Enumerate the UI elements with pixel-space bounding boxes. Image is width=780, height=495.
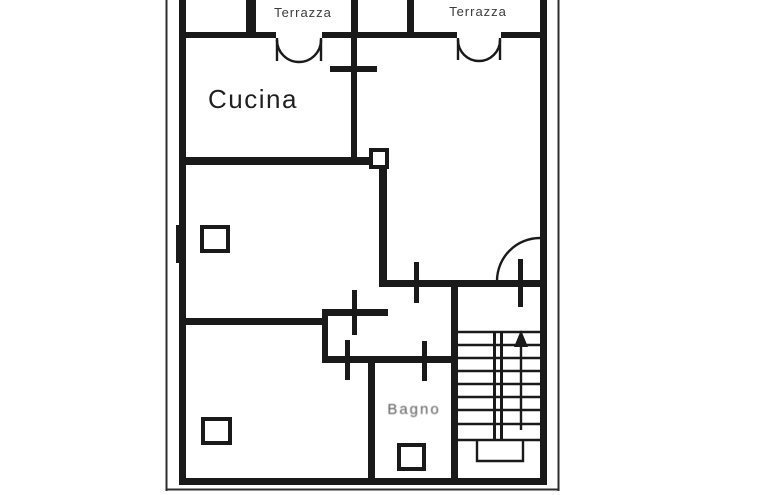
window-marker-left-wall (176, 225, 180, 263)
stairs-up-arrow-icon (514, 330, 528, 430)
wall-terrace-divider-2 (407, 0, 414, 38)
building-walls (179, 0, 547, 485)
wall-terrace-divider-0 (246, 0, 256, 38)
stair-stringer (493, 332, 496, 440)
opening-kitchen-living (330, 66, 377, 72)
fixture-square-bedroom2 (203, 419, 230, 443)
fixture-square-bath (399, 445, 424, 469)
floor-plan-drawing: Terrazza Terrazza Cucina Bagno (0, 0, 780, 495)
fixture-square-bedroom1 (202, 227, 228, 251)
wall-right (540, 0, 547, 485)
room-label-cucina: Cucina (208, 84, 298, 114)
room-fixtures (202, 227, 424, 469)
stair-stringer (500, 332, 503, 440)
terrace-double-doors (277, 38, 500, 62)
staircase (457, 330, 543, 461)
wall-bedroom2-top (181, 318, 328, 325)
pillar-square (371, 150, 387, 167)
wall-bath-left (368, 363, 375, 481)
door-swing-arc (458, 40, 479, 61)
wall-stair-left (451, 287, 458, 481)
wall-terrace-divider-1 (351, 0, 358, 38)
opening-bath-hall (422, 341, 427, 381)
wall-kitchen-right (351, 38, 357, 160)
wall-terrace-sill-c (501, 32, 542, 38)
room-label-bagno: Bagno (387, 401, 440, 418)
wall-terrace-sill-a (184, 32, 276, 38)
scanned-floor-plan-page: Terrazza Terrazza Cucina Bagno (0, 0, 780, 495)
stair-well-landing (477, 440, 523, 461)
door-swing-arc (277, 40, 299, 62)
room-label-terrazza-left: Terrazza (274, 5, 332, 20)
wall-hall-bottom (322, 356, 458, 363)
room-label-terrazza-right: Terrazza (449, 4, 507, 19)
wall-living-left (379, 164, 387, 284)
door-swing-arc (299, 40, 321, 62)
wall-under-kitchen (181, 157, 372, 165)
opening-stair-door-leaf (518, 259, 523, 307)
opening-bedroom2-hall (345, 340, 350, 380)
wall-terrace-sill-b (322, 32, 457, 38)
opening-bedroom1-hall (352, 290, 357, 335)
wall-left (179, 0, 186, 485)
wall-bottom (179, 478, 547, 485)
opening-living-hall (414, 262, 419, 303)
door-swing-arc (479, 40, 500, 61)
